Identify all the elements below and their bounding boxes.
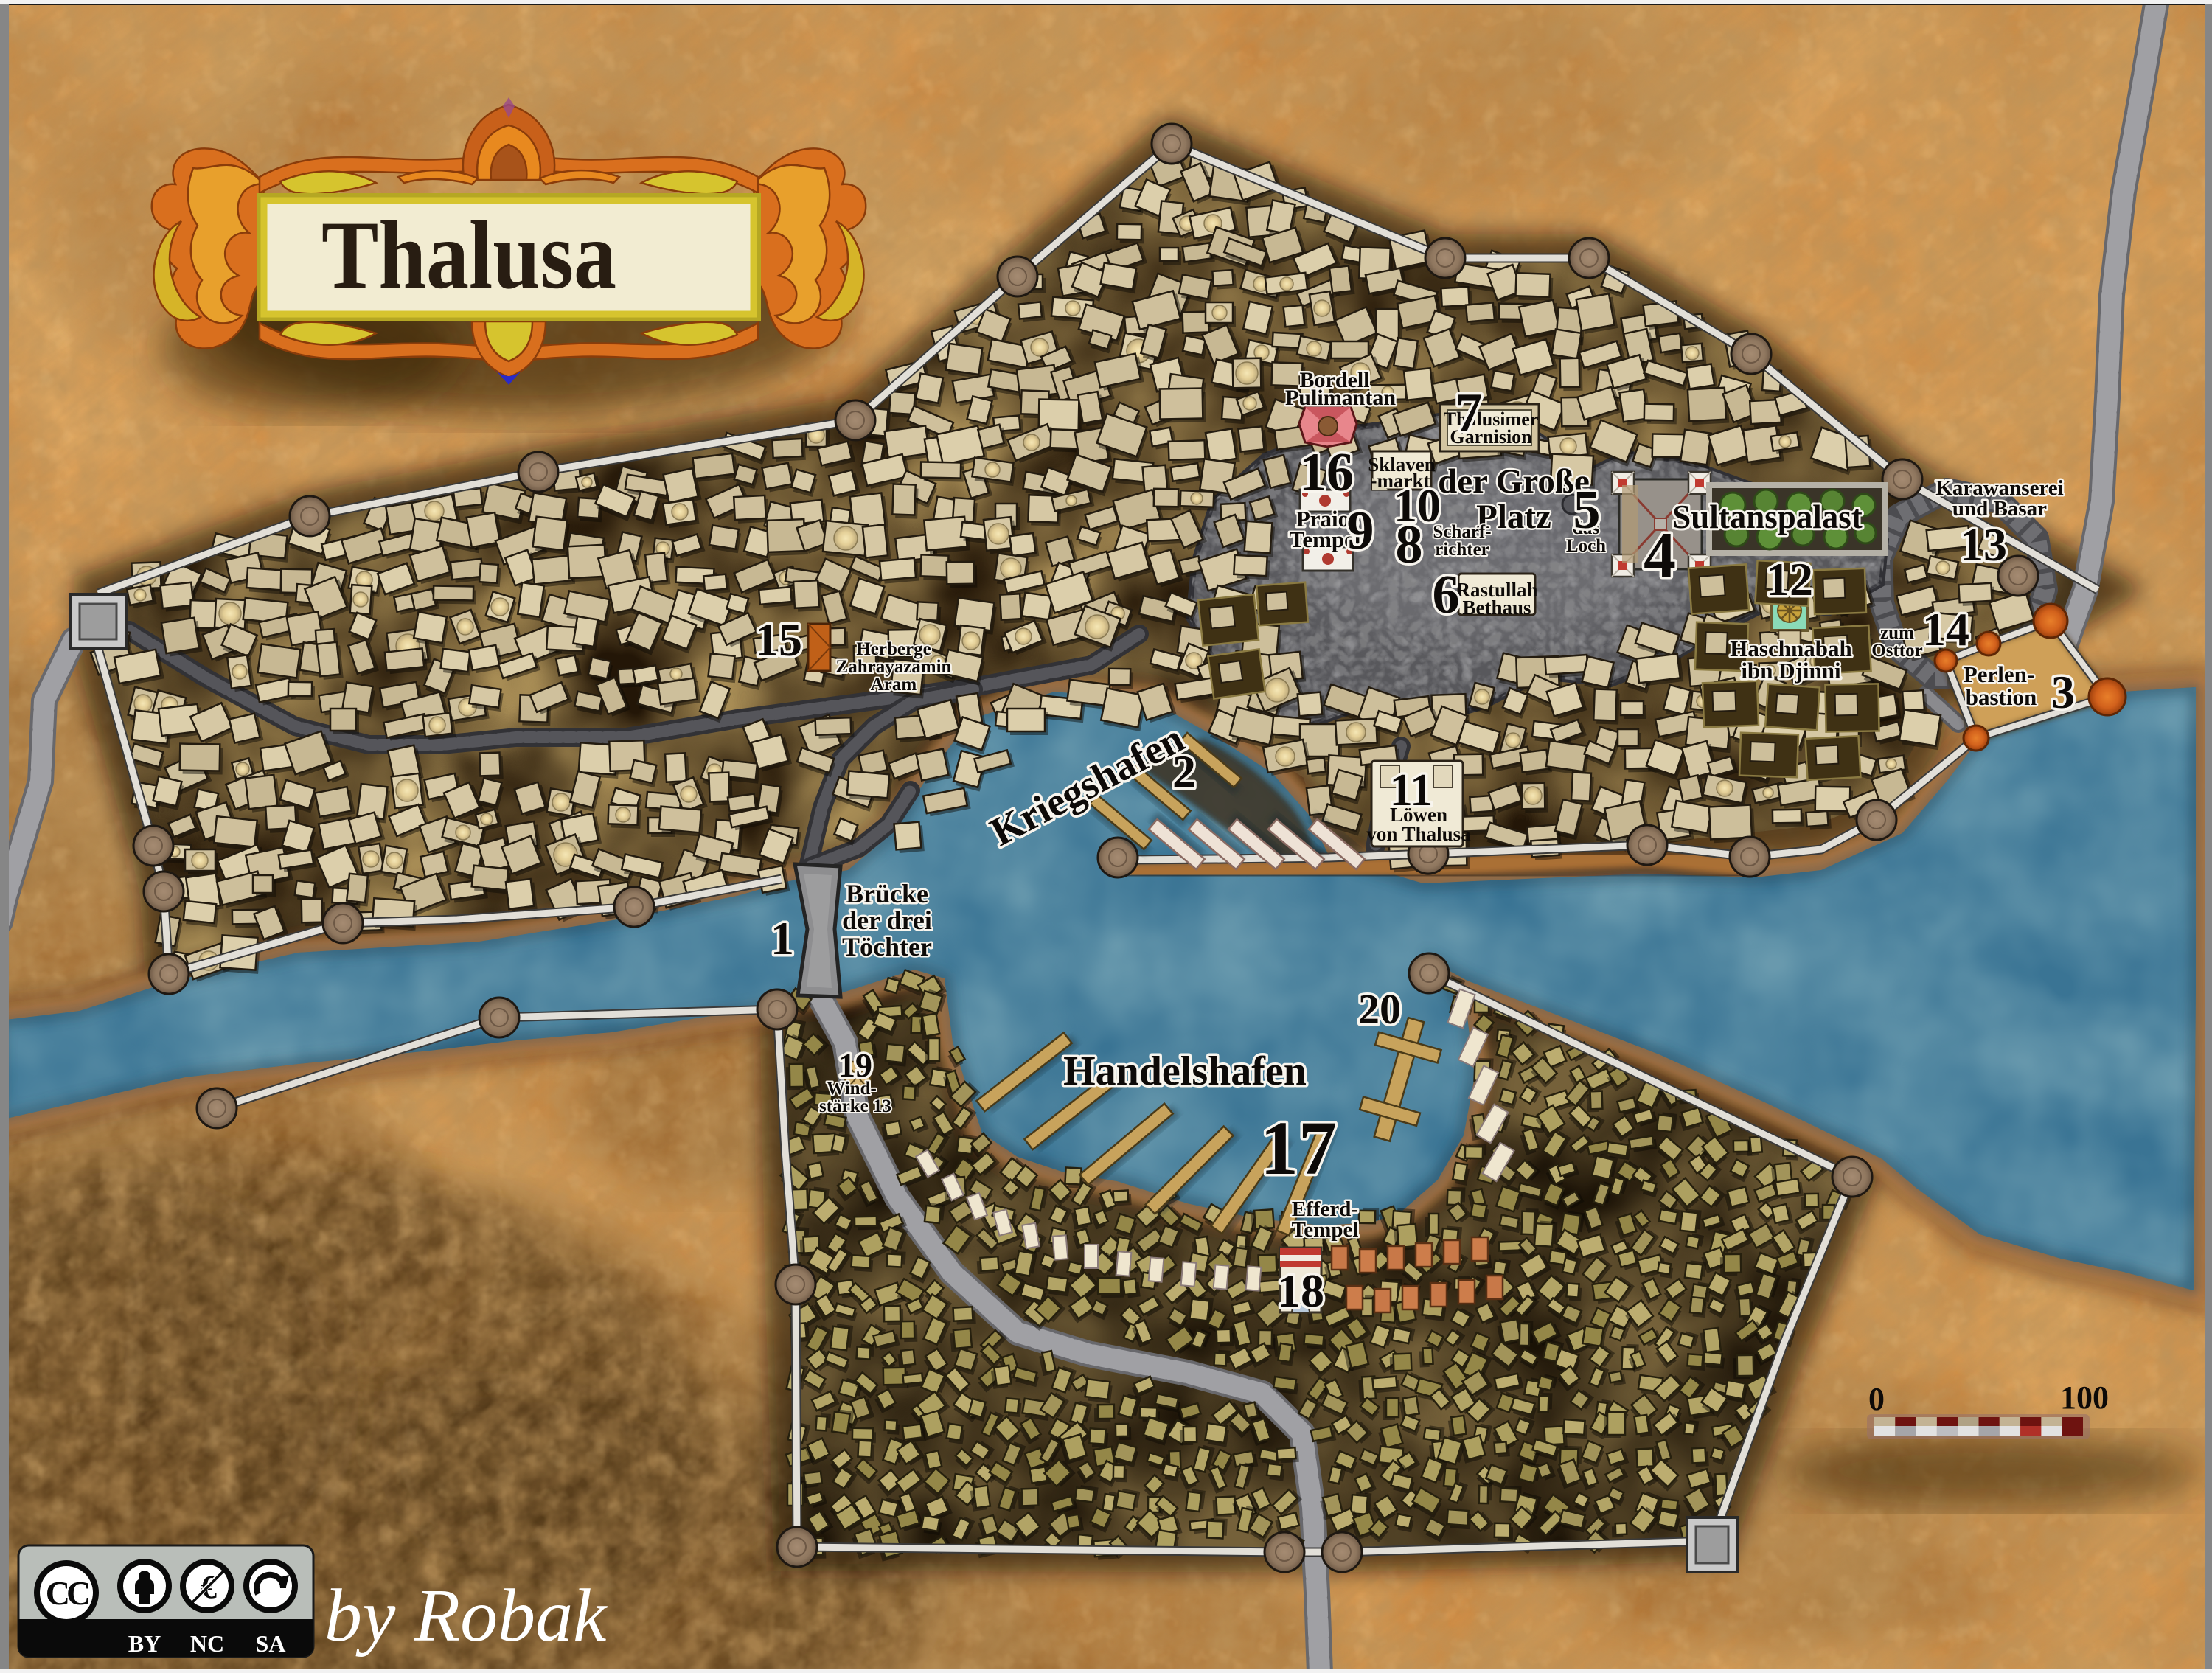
svg-text:1: 1 [771,912,794,964]
svg-text:13: 13 [1960,518,2007,571]
svg-text:Brücke: Brücke [846,879,928,908]
svg-text:Sultanspalast: Sultanspalast [1672,498,1863,535]
svg-text:6: 6 [1433,565,1460,625]
svg-text:16: 16 [1299,442,1354,503]
svg-text:Osttor: Osttor [1871,641,1922,661]
svg-text:11: 11 [1390,765,1433,815]
svg-text:Töchter: Töchter [842,932,932,961]
svg-text:8: 8 [1396,515,1423,575]
svg-text:Pulimantan: Pulimantan [1285,386,1396,410]
svg-text:richter: richter [1435,540,1489,560]
svg-text:12: 12 [1766,553,1813,605]
svg-text:18: 18 [1277,1265,1324,1317]
svg-text:9: 9 [1347,501,1374,561]
svg-text:der Große: der Große [1438,462,1590,501]
svg-text:CC: CC [46,1574,88,1612]
svg-text:2: 2 [1172,745,1196,798]
svg-text:SA: SA [256,1630,286,1657]
svg-text:BY: BY [128,1630,161,1657]
svg-text:4: 4 [1644,520,1676,591]
svg-text:Bethaus: Bethaus [1462,596,1531,619]
svg-text:Zahrayazamin: Zahrayazamin [836,657,952,677]
svg-text:7: 7 [1455,383,1483,443]
svg-text:Scharf-: Scharf- [1433,522,1491,542]
svg-text:100: 100 [2060,1380,2109,1416]
svg-text:der drei: der drei [842,905,932,935]
svg-text:von Thalusa: von Thalusa [1366,823,1471,845]
svg-text:Tempel: Tempel [1292,1218,1359,1242]
svg-text:19: 19 [838,1046,872,1084]
svg-text:ibn Djinni: ibn Djinni [1741,658,1841,684]
svg-text:zum: zum [1880,623,1914,643]
svg-text:NC: NC [190,1630,224,1657]
svg-text:bastion: bastion [1966,684,2037,710]
svg-text:17: 17 [1260,1106,1337,1191]
svg-text:und Basar: und Basar [1952,497,2047,521]
svg-text:5: 5 [1573,480,1601,540]
svg-text:by Robak: by Robak [324,1574,608,1658]
svg-text:0: 0 [1868,1381,1885,1417]
svg-text:15: 15 [755,613,802,666]
svg-text:Herberge: Herberge [856,639,931,659]
svg-text:Perlen-: Perlen- [1964,661,2034,687]
svg-text:Handelshafen: Handelshafen [1063,1048,1307,1094]
svg-text:stärke 13: stärke 13 [819,1096,891,1116]
svg-text:14: 14 [1922,603,1969,655]
svg-text:20: 20 [1358,985,1401,1033]
svg-text:Thalusa: Thalusa [321,201,616,309]
svg-text:Aram: Aram [871,675,917,695]
svg-text:3: 3 [2051,666,2075,718]
